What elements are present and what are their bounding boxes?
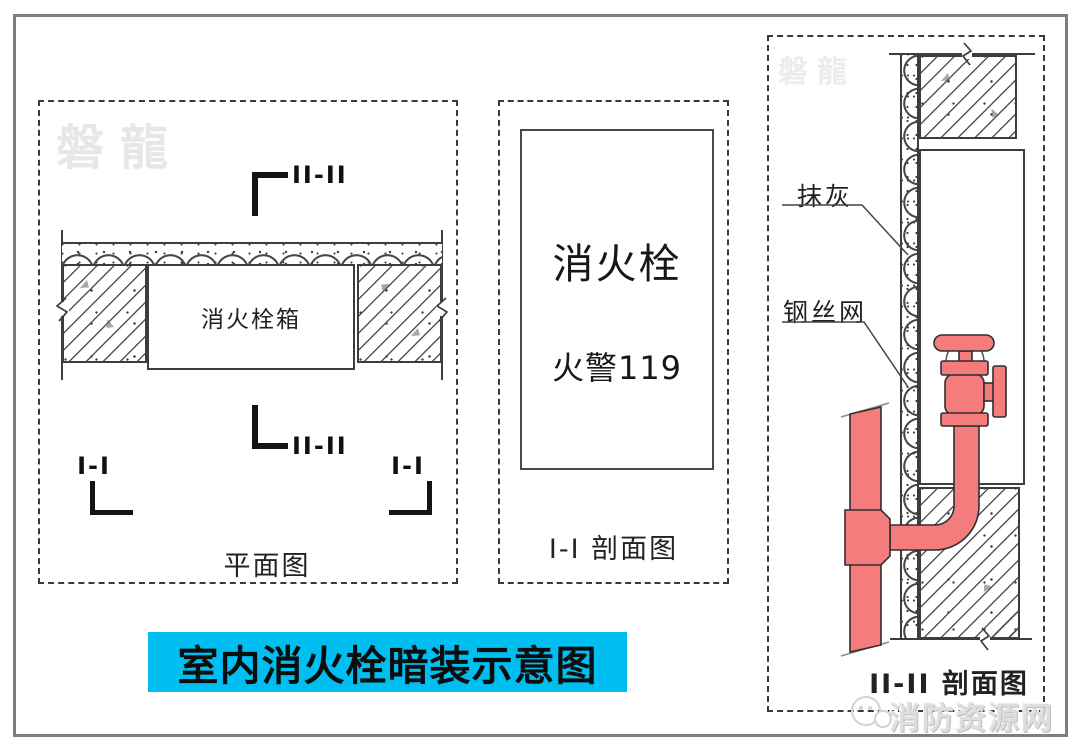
tee-fitting <box>845 510 890 565</box>
valve-body <box>945 374 984 415</box>
hydrant-sign-subtitle: 火警119 <box>522 343 712 389</box>
plaster-leader-line <box>782 205 908 255</box>
wire-mesh-leader-line <box>782 322 908 387</box>
section-ii-drawing <box>769 37 1043 710</box>
title-banner: 室内消火栓暗装示意图 <box>148 632 627 692</box>
valve-outlet-flange <box>993 366 1006 417</box>
plan-view-panel: 磐龍 II-II 消火栓箱 II-II I- <box>38 100 458 584</box>
valve-upper-flange <box>941 361 988 375</box>
valve-handwheel <box>934 335 994 351</box>
valve-lower-flange <box>941 413 988 426</box>
section-i-caption: I-I 剖面图 <box>500 527 727 566</box>
section-ii-panel: 磐龍 抹灰 钢丝网 <box>767 35 1045 712</box>
site-watermark: 消防资源网 <box>889 693 1054 738</box>
installation-diagram: 磐龍 II-II 消火栓箱 II-II I- <box>0 0 1080 754</box>
section-i-panel: 消火栓 火警119 I-I 剖面图 <box>498 100 729 584</box>
hydrant-sign-title: 消火栓 <box>522 230 712 290</box>
branch-pipe-elbow <box>890 426 979 550</box>
plan-break-marks <box>40 102 460 582</box>
hydrant-sign-plate: 消火栓 火警119 <box>520 129 714 470</box>
hydrant-valve <box>934 335 1006 426</box>
diagram-title: 室内消火栓暗装示意图 <box>178 632 598 692</box>
